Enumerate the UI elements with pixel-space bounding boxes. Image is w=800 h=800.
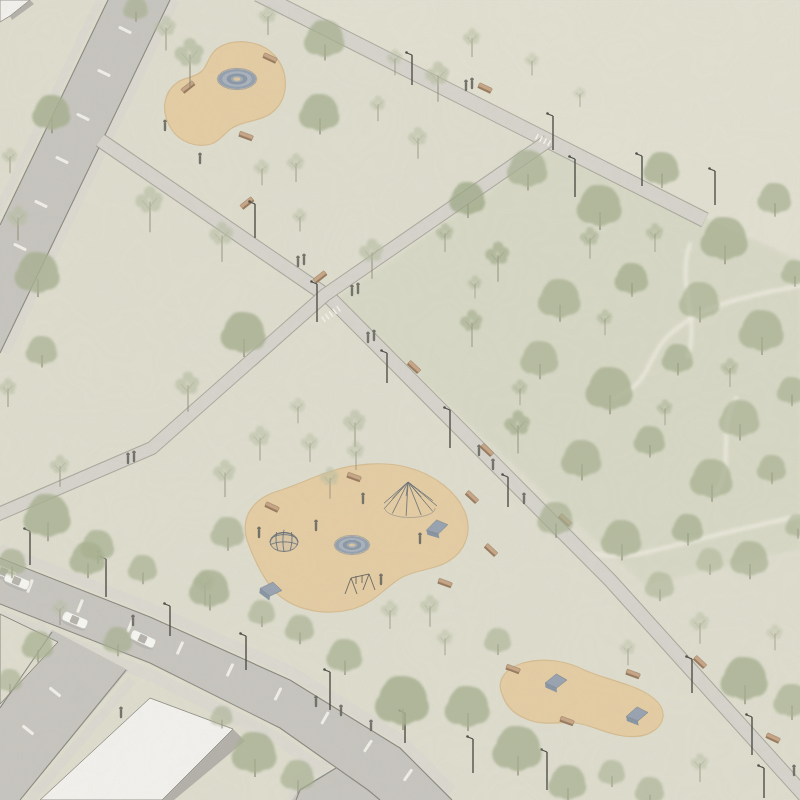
texture-grain bbox=[0, 0, 800, 800]
park-plan-canvas bbox=[0, 0, 800, 800]
park-plan-illustration bbox=[0, 0, 800, 800]
layer-texture bbox=[0, 0, 800, 800]
